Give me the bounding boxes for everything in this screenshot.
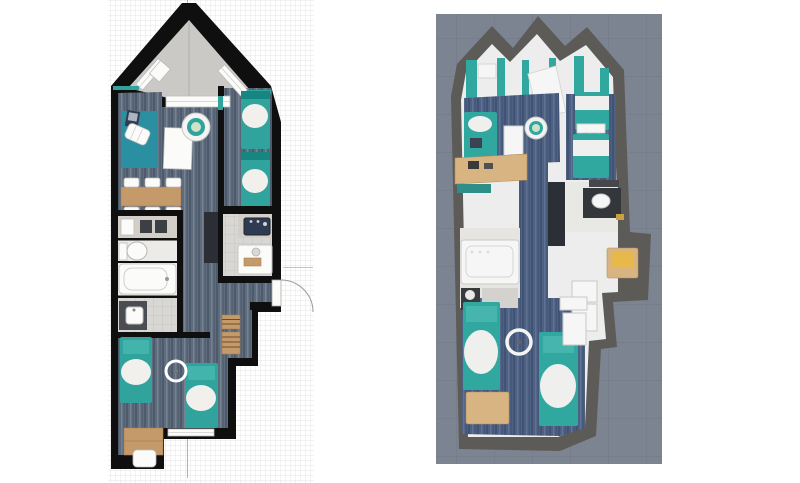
bedroom-windows-3d: [560, 297, 587, 345]
shower-room: [223, 214, 272, 278]
single-bed-3: [120, 337, 152, 403]
ladder-shelf-2: [222, 332, 240, 354]
cooktop: [468, 161, 479, 169]
floorplan-2d: [0, 0, 430, 483]
corner-shower: [118, 298, 177, 332]
single-bed-2: [241, 152, 270, 210]
bathroom-right: [583, 180, 624, 220]
tall-cabinet-3d: [548, 182, 565, 246]
bath-mat: [244, 258, 261, 266]
mirror: [589, 180, 619, 187]
single-bed-3d-3: [463, 302, 500, 390]
floor-plan-screenshot: [0, 0, 800, 483]
doorway-curtain: [218, 96, 223, 110]
desk-chair: [133, 450, 156, 467]
wall-shelf: [478, 64, 496, 78]
bathroom-block: [118, 216, 177, 332]
bathtub-3d: [461, 240, 519, 284]
shower-tray: [238, 245, 272, 274]
ladder-shelf-1: [222, 315, 240, 329]
single-bed-4: [185, 363, 218, 428]
tall-cabinet: [204, 212, 218, 263]
laptop-icon: [470, 138, 482, 148]
daybed: [464, 112, 497, 158]
nightstand: [577, 124, 605, 133]
single-bed-1: [241, 91, 270, 149]
swivel-chair-3d: [525, 117, 547, 139]
bedroom-window: [168, 429, 214, 436]
curtain-left: [113, 86, 139, 90]
single-bed-3d-4: [539, 332, 578, 426]
kitchen-counter: [118, 216, 177, 238]
bench: [457, 184, 491, 193]
floorplan-3d: [430, 0, 800, 483]
single-bed-3d-2: [573, 134, 609, 178]
yellow-desk: [607, 248, 638, 278]
desk-3d: [466, 392, 509, 424]
oven: [155, 220, 167, 233]
bathtub: [119, 264, 176, 294]
dining-table: [121, 187, 181, 206]
toilet: [119, 242, 147, 260]
swivel-chair: [182, 113, 210, 141]
cooktop: [140, 220, 152, 233]
dimension-line-bottom: [187, 437, 188, 478]
